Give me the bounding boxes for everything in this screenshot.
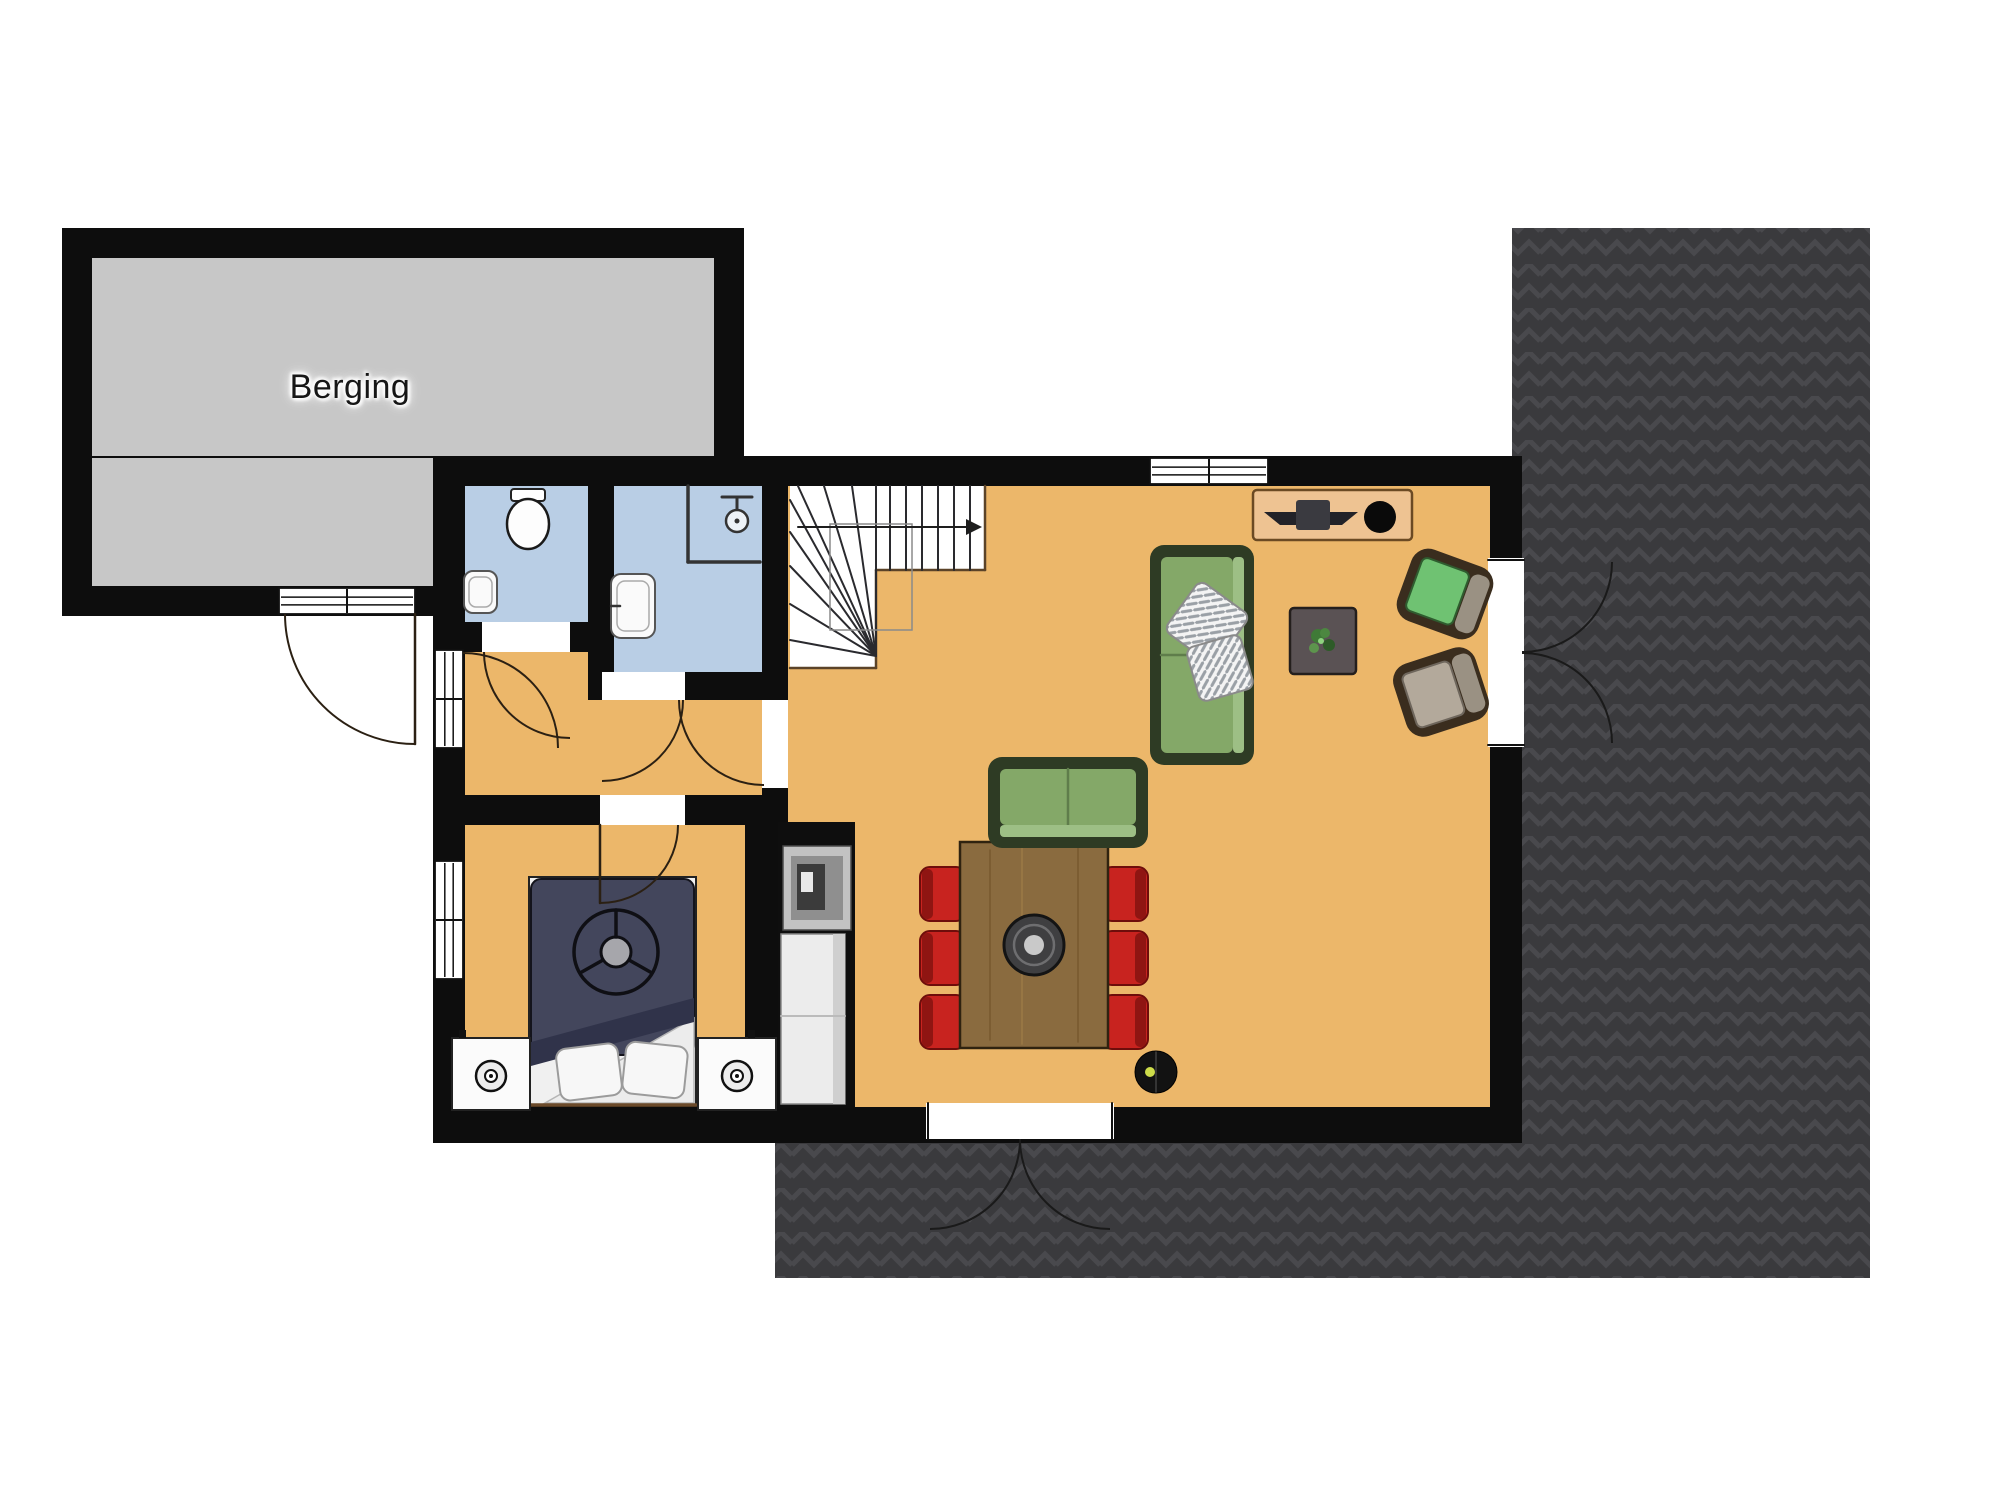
terrace-bottom [775,1128,1512,1278]
table-centerpiece-core [1024,935,1044,955]
lamp-left-dot [489,1074,493,1078]
patio-door-opening-bottom [926,1103,1114,1139]
top-wall-window [1150,458,1268,484]
berging-floor-lower [92,458,433,586]
sofa-bottom-front-edge [1000,825,1136,837]
dining-chair-back [1135,997,1146,1047]
dining-chair-back [922,997,933,1047]
floorplan-canvas [0,0,2000,1500]
front-door-glazing [435,650,463,748]
lamp-right-dot [735,1074,739,1078]
room-label-berging: Berging [245,368,455,407]
berging-door-glazing [279,588,415,614]
plant-center [1318,638,1324,644]
fridge-shade [833,934,845,1104]
bed-pillow [621,1041,688,1099]
bed-wheel-hub [601,937,631,967]
bed-pillow [555,1042,623,1101]
patio-door-opening-right [1488,558,1524,747]
plant-leaf [1320,628,1330,638]
robot-vacuum-light [1145,1067,1155,1077]
oven-window [801,872,813,892]
dining-chair-back [1135,869,1146,919]
dining-chair-back [922,869,933,919]
terrace-right [1512,228,1870,1278]
speaker-bowl [1364,501,1396,533]
bedroom-window [435,861,463,979]
dining-chair-back [1135,933,1146,983]
bedroom-door-opening [600,795,685,825]
dining-chair-back [922,933,933,983]
plant-leaf [1323,639,1335,651]
wc-door-opening [482,622,570,652]
toilet-bowl [507,499,549,549]
berging-floor-upper [92,258,714,456]
hall-floor-left [465,652,588,795]
tv-center-unit [1296,500,1330,530]
berging-door-swing [285,614,415,744]
plant-leaf [1309,643,1319,653]
floorplan: Berging [0,0,2000,1500]
shower-head-dot [735,519,740,524]
hall-living-door-opening [762,700,788,788]
bathroom-door-opening [602,672,685,700]
nightstand-candle [748,1030,755,1038]
nightstand-candle [459,1030,466,1038]
